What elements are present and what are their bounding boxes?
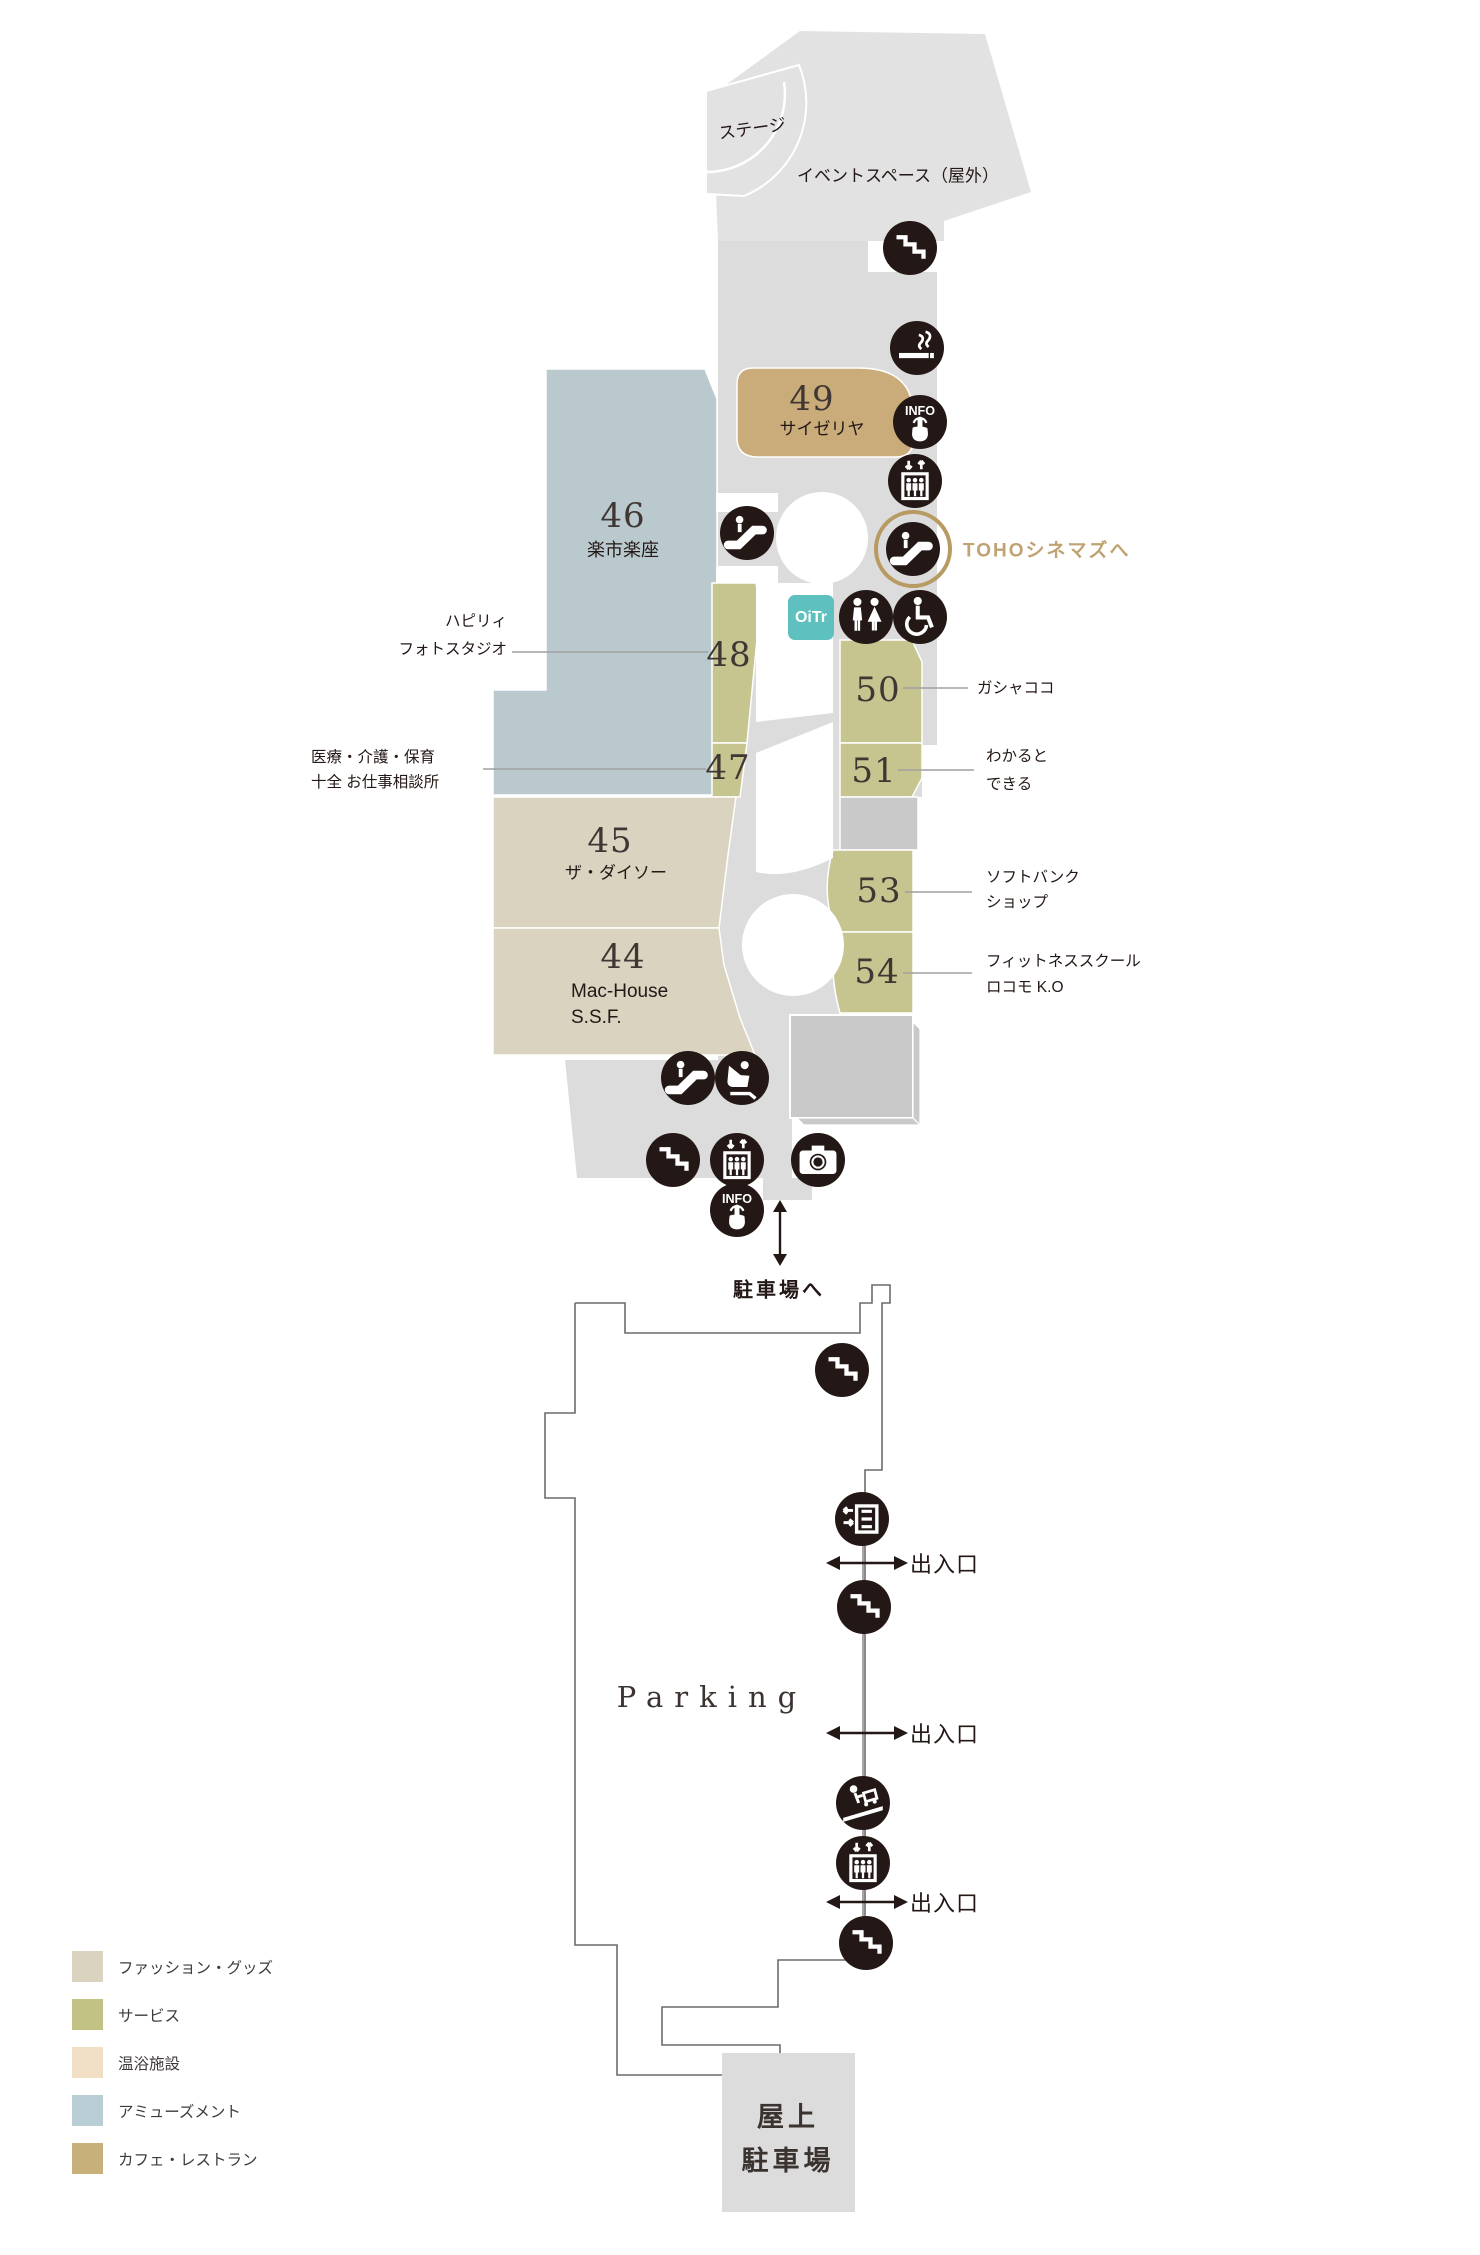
stairs-icon [815,1343,869,1397]
svg-text:INFO: INFO [905,404,935,418]
callout-wakaru-line2: できる [986,771,1048,799]
escalator-icon [886,522,940,576]
svg-text:INFO: INFO [722,1192,752,1206]
escalator-icon [661,1051,715,1105]
legend-swatch [72,1951,103,1982]
exit-arrow-2 [826,1726,908,1740]
shop-44-name: Mac-House S.S.F. [571,979,668,1031]
event-space-label: イベントスペース（屋外） [797,162,999,187]
legend-swatch [72,2047,103,2078]
cart-slope-icon [836,1776,890,1830]
callout-happily: ハピリィ フォトスタジオ [398,608,507,664]
legend-swatch [72,2095,103,2126]
callout-softbank-line1: ソフトバンク [986,865,1080,890]
stairs-icon [646,1133,700,1187]
callout-wakaru: わかると できる [986,743,1048,799]
legend-swatch [72,1999,103,2030]
stairs-icon [837,1580,891,1634]
map-shapes-svg [0,0,1480,2255]
shop-48-number: 48 [706,635,751,675]
toho-cinemas-link-label: TOHOシネマズへ [963,536,1131,563]
legend: ファッション・グッズサービス温浴施設アミューズメントカフェ・レストラン [72,1951,273,2191]
oitr-sign: OiTr [788,595,834,640]
callout-softbank: ソフトバンク ショップ [986,865,1080,915]
shop-46-name: 楽市楽座 [587,536,659,562]
structure-block-side [913,1022,920,1125]
parking-gate-icon [835,1492,889,1546]
shop-46-number: 46 [600,496,645,536]
shop-54-number: 54 [854,952,899,992]
shop-44-name-line1: Mac-House [571,979,668,1005]
callout-fitness-line1: フィットネススクール [986,949,1141,975]
plaza-circle-upper [776,492,868,584]
massage-chair-icon [715,1051,769,1105]
callout-medical-line2: 十全 お仕事相談所 [311,770,439,795]
wheelchair-icon [893,590,947,644]
callout-happily-line1: ハピリィ [398,608,507,636]
shop-50-number: 50 [855,670,900,710]
legend-item: アミューズメント [72,2095,273,2126]
info-icon: INFO [893,395,947,449]
callout-fitness: フィットネススクール ロコモ K.O [986,949,1141,1001]
legend-label: ファッション・グッズ [118,1956,273,1978]
rooftop-label-line2: 駐車場 [742,2139,835,2183]
structure-block-bottom [797,1118,920,1125]
shop-47-number: 47 [705,748,750,788]
legend-label: 温浴施設 [118,2052,180,2074]
smoking-icon [890,321,944,375]
camera-icon [791,1133,845,1187]
parking-link-label: 駐車場へ [733,1274,825,1303]
plaza-circle-lower [742,894,844,996]
shop-51-number: 51 [851,751,896,791]
legend-label: カフェ・レストラン [118,2148,258,2170]
legend-item: ファッション・グッズ [72,1951,273,1982]
escalator-icon [720,506,774,560]
shop-44-number: 44 [600,937,645,977]
callout-medical-line1: 医療・介護・保育 [311,745,439,770]
stairs-icon [883,221,937,275]
callout-softbank-line2: ショップ [986,890,1080,915]
callout-fitness-line2: ロコモ K.O [986,975,1141,1001]
parking-title: Parking [617,1680,807,1714]
callout-gashacoco: ガシャココ [977,676,1055,701]
elevator-icon [888,454,942,508]
exit-arrow-3 [826,1895,908,1909]
elevator-icon [710,1133,764,1187]
parking-link-arrow [773,1200,787,1266]
elevator-icon [836,1836,890,1890]
legend-swatch [72,2143,103,2174]
shop-49-number: 49 [789,379,834,419]
stairs-icon [839,1916,893,1970]
shop-46-area [493,369,717,795]
shop-49-name: サイゼリヤ [780,415,865,440]
legend-label: アミューズメント [118,2100,241,2122]
gray-block-upper [840,797,918,850]
exit-label-2: 出入口 [910,1717,979,1749]
legend-item: 温浴施設 [72,2047,273,2078]
info-icon: INFO [710,1183,764,1237]
structure-block [790,1015,913,1118]
shop-53-number: 53 [856,871,901,911]
exit-label-1: 出入口 [910,1547,979,1579]
exit-arrow-1 [826,1556,908,1570]
legend-item: サービス [72,1999,273,2030]
floor-map-page: ステージ イベントスペース（屋外） TOHOシネマズへ OiTr 46 楽市楽座… [0,0,1480,2255]
shop-45-number: 45 [587,821,632,861]
restroom-icon [839,590,893,644]
callout-wakaru-line1: わかると [986,743,1048,771]
exit-label-3: 出入口 [910,1886,979,1918]
shop-44-name-line2: S.S.F. [571,1005,668,1031]
callout-happily-line2: フォトスタジオ [398,636,507,664]
shop-45-name: ザ・ダイソー [565,859,667,884]
legend-item: カフェ・レストラン [72,2143,273,2174]
rooftop-label-line1: 屋上 [742,2095,835,2139]
walkway-stub-2 [716,566,778,583]
rooftop-parking-label: 屋上 駐車場 [742,2095,835,2183]
callout-medical: 医療・介護・保育 十全 お仕事相談所 [311,745,439,795]
legend-label: サービス [118,2004,180,2026]
